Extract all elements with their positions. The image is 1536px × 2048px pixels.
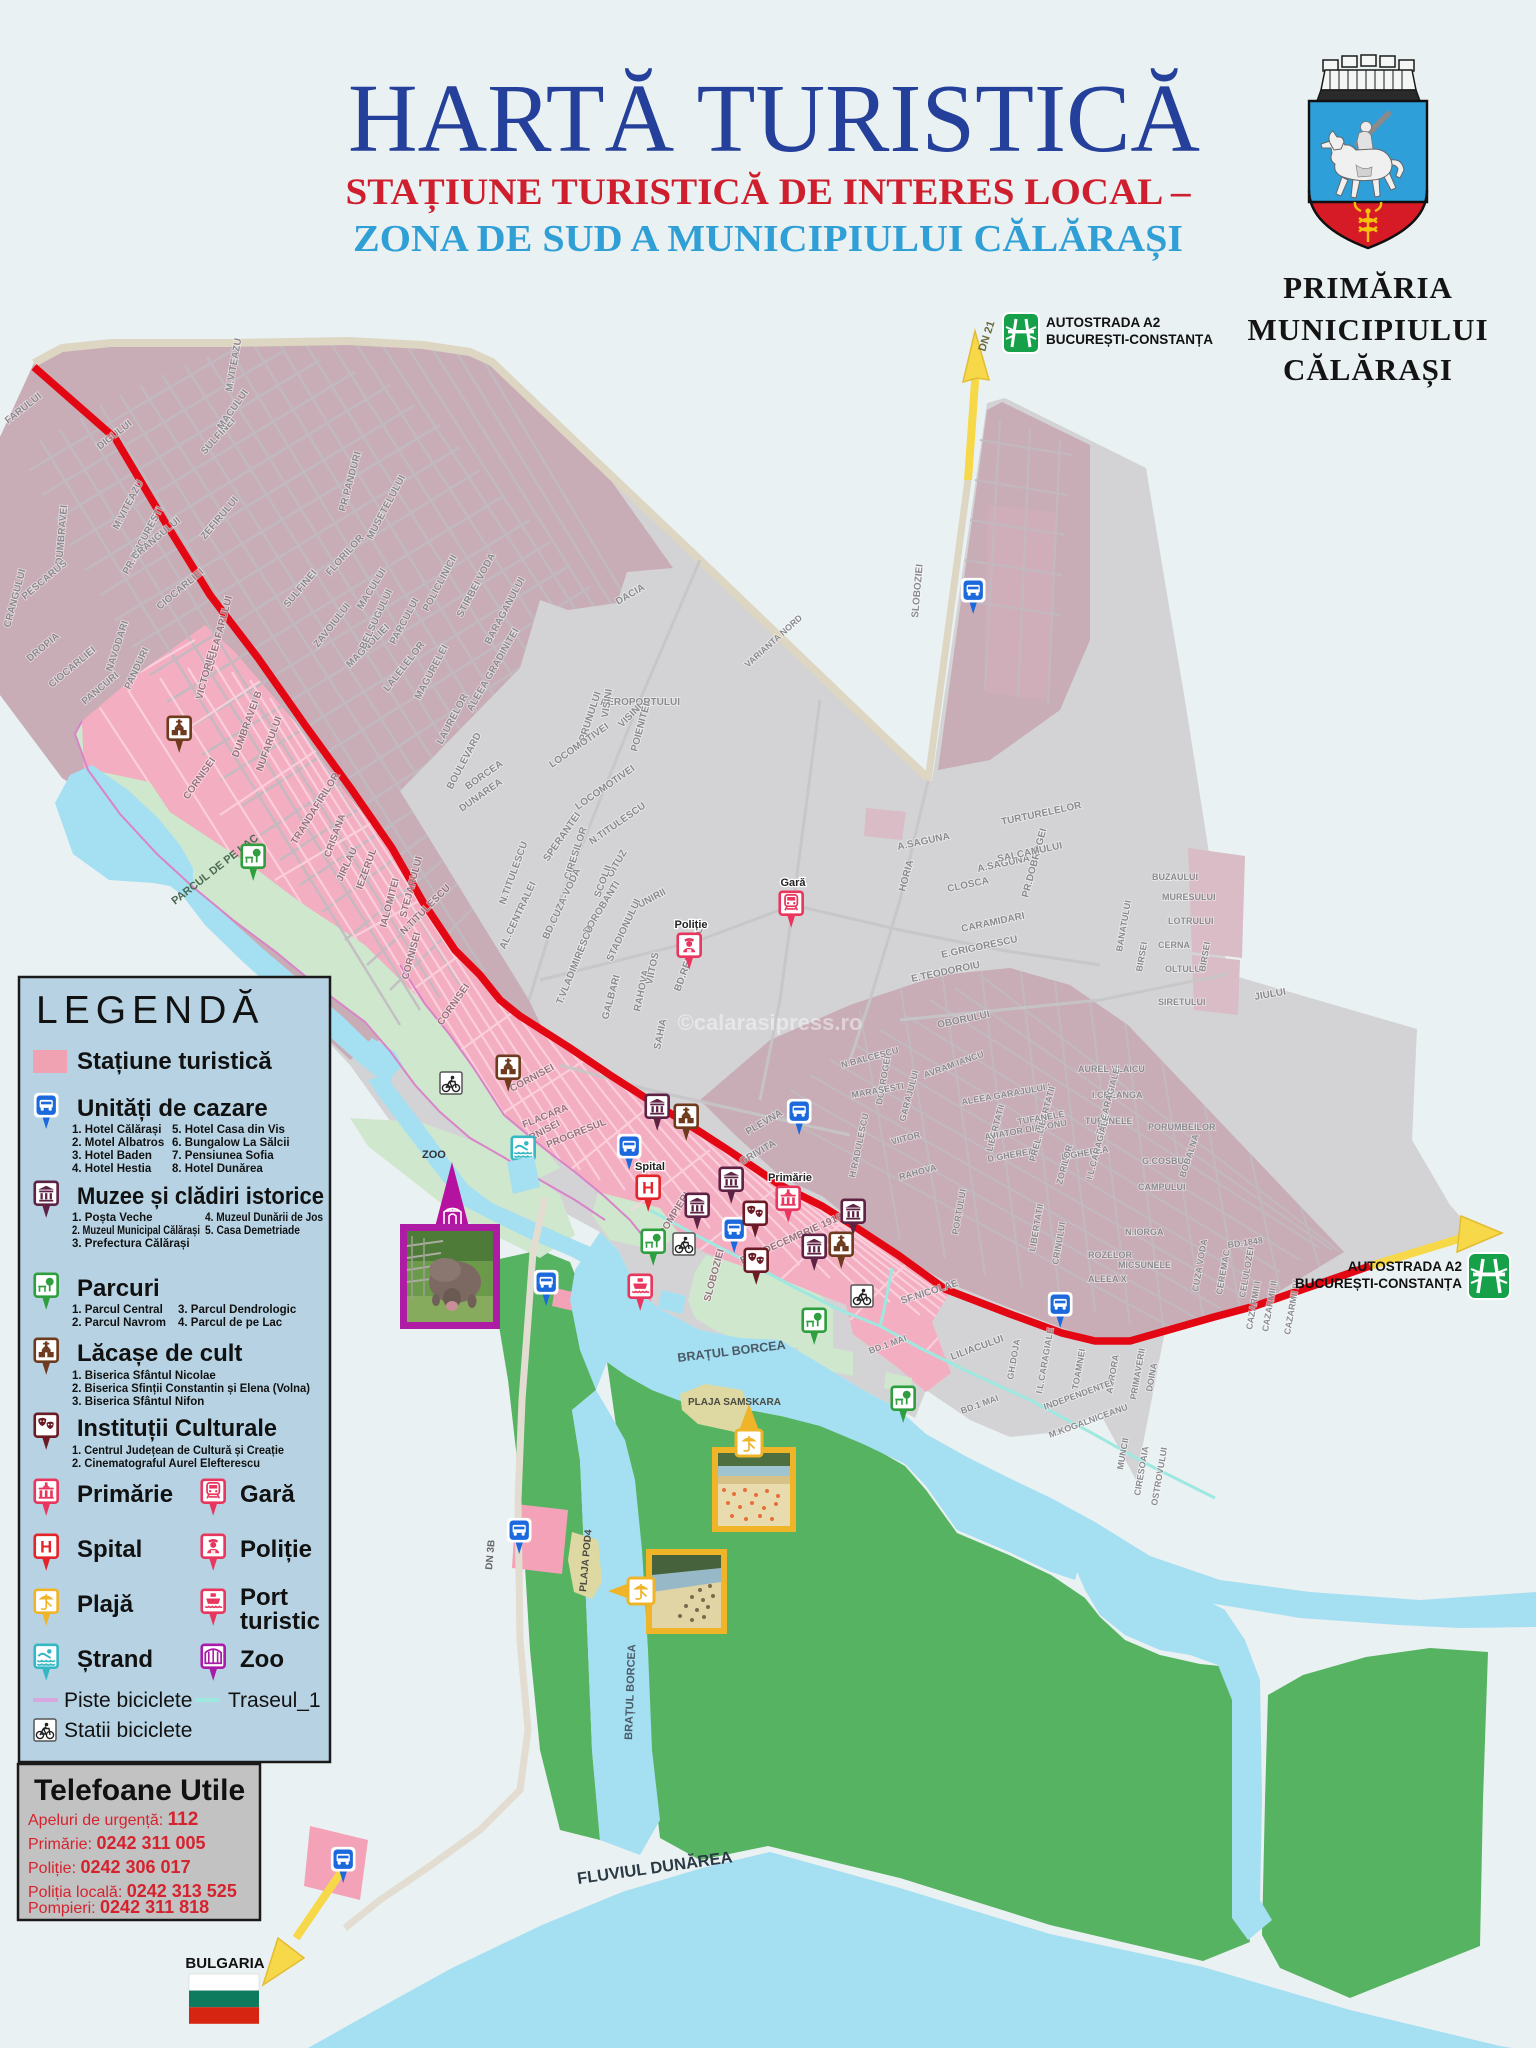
svg-text:Primărie: Primărie [77, 1481, 173, 1508]
svg-text:ZOO: ZOO [422, 1149, 446, 1161]
svg-text:Unități de cazare: Unități de cazare [77, 1095, 268, 1122]
svg-text:I.CREANGA: I.CREANGA [1092, 1090, 1143, 1100]
svg-text:AUTOSTRADA A2: AUTOSTRADA A2 [1348, 1259, 1462, 1274]
svg-text:4. Hotel Hestia: 4. Hotel Hestia [72, 1163, 152, 1175]
svg-text:5. Hotel Casa din Vis: 5. Hotel Casa din Vis [172, 1124, 285, 1136]
svg-text:MURESULUI: MURESULUI [1162, 892, 1216, 902]
svg-text:turistic: turistic [240, 1608, 320, 1635]
svg-text:3. Hotel Baden: 3. Hotel Baden [72, 1150, 152, 1162]
svg-text:3. Biserica Sfântul Nifon: 3. Biserica Sfântul Nifon [72, 1396, 204, 1408]
svg-text:1. Poșta Veche: 1. Poșta Veche [72, 1212, 153, 1224]
svg-text:Lăcașe de cult: Lăcașe de cult [77, 1340, 242, 1367]
svg-text:Traseul_1: Traseul_1 [228, 1689, 321, 1712]
svg-text:6. Bungalow La Sălcii: 6. Bungalow La Sălcii [172, 1137, 290, 1149]
svg-text:Piste biciclete: Piste biciclete [64, 1689, 192, 1712]
svg-text:1. Hotel Călărași: 1. Hotel Călărași [72, 1124, 161, 1136]
svg-text:Statii biciclete: Statii biciclete [64, 1719, 192, 1742]
svg-text:2. Muzeul Municipal Călărași: 2. Muzeul Municipal Călărași [72, 1225, 200, 1237]
svg-text:CĂLĂRAȘI: CĂLĂRAȘI [1283, 352, 1453, 388]
svg-text:SIRETULUI: SIRETULUI [1158, 997, 1206, 1007]
svg-text:LOTRULUI: LOTRULUI [1168, 916, 1214, 926]
svg-text:1. Parcul Central: 1. Parcul Central [72, 1304, 163, 1316]
svg-text:ROZELOR: ROZELOR [1088, 1250, 1132, 1260]
svg-text:3. Prefectura Călărași: 3. Prefectura Călărași [72, 1238, 190, 1250]
svg-text:OSTROVULUI: OSTROVULUI [1149, 1446, 1169, 1506]
svg-text:Gară: Gară [240, 1481, 295, 1508]
svg-text:Poliție: 0242 306 017: Poliție: 0242 306 017 [28, 1857, 191, 1877]
svg-text:Plajă: Plajă [77, 1591, 134, 1618]
svg-text:2. Biserica Sfinții Constantin: 2. Biserica Sfinții Constantin și Elena … [72, 1383, 310, 1395]
svg-text:STAȚIUNE TURISTICĂ DE INTERES: STAȚIUNE TURISTICĂ DE INTERES LOCAL – [346, 171, 1192, 214]
svg-text:8. Hotel Dunărea: 8. Hotel Dunărea [172, 1163, 263, 1175]
svg-text:Muzee și clădiri istorice: Muzee și clădiri istorice [77, 1183, 324, 1210]
svg-text:Spital: Spital [635, 1161, 665, 1173]
svg-text:Spital: Spital [77, 1536, 142, 1563]
svg-text:PLAJA SAMSKARA: PLAJA SAMSKARA [688, 1397, 781, 1408]
svg-text:CERNA: CERNA [1158, 940, 1191, 950]
svg-text:PRIMĂRIA: PRIMĂRIA [1283, 270, 1453, 305]
svg-text:BUCUREȘTI-CONSTANȚA: BUCUREȘTI-CONSTANȚA [1046, 332, 1213, 347]
svg-text:Primărie: Primărie [768, 1172, 812, 1184]
svg-text:Port: Port [240, 1584, 288, 1611]
svg-text:1. Biserica Sfântul Nicolae: 1. Biserica Sfântul Nicolae [72, 1370, 216, 1382]
svg-text:Apeluri de urgență: 112: Apeluri de urgență: 112 [28, 1809, 198, 1830]
svg-text:ZONA DE SUD A MUNICIPIULUI CĂL: ZONA DE SUD A MUNICIPIULUI CĂLĂRAȘI [353, 218, 1183, 261]
svg-text:2. Parcul Navrom: 2. Parcul Navrom [72, 1317, 166, 1329]
svg-text:CAMPULUI: CAMPULUI [1138, 1182, 1186, 1192]
svg-text:AUTOSTRADA A2: AUTOSTRADA A2 [1046, 315, 1160, 330]
svg-text:HARTĂ TURISTICĂ: HARTĂ TURISTICĂ [348, 65, 1200, 172]
svg-text:MICSUNELE: MICSUNELE [1118, 1260, 1171, 1270]
svg-text:3. Parcul Dendrologic: 3. Parcul Dendrologic [178, 1304, 297, 1316]
svg-text:Stațiune turistică: Stațiune turistică [77, 1048, 272, 1075]
svg-text:Poliție: Poliție [240, 1536, 312, 1563]
svg-text:N.IORGA: N.IORGA [1125, 1227, 1164, 1237]
svg-text:Poliție: Poliție [674, 919, 707, 931]
svg-text:Pompieri: 0242 311 818: Pompieri: 0242 311 818 [28, 1897, 209, 1917]
svg-text:SLOBOZIEI: SLOBOZIEI [910, 563, 926, 618]
svg-text:Gară: Gară [780, 877, 806, 889]
svg-text:BUCUREȘTI-CONSTANȚA: BUCUREȘTI-CONSTANȚA [1295, 1276, 1462, 1291]
svg-text:5. Casa Demetriade: 5. Casa Demetriade [205, 1225, 300, 1237]
svg-text:7. Pensiunea Sofia: 7. Pensiunea Sofia [172, 1150, 274, 1162]
svg-text:4. Muzeul Dunării de Jos: 4. Muzeul Dunării de Jos [205, 1212, 323, 1224]
svg-text:1. Centrul Județean de Cultură: 1. Centrul Județean de Cultură și Creați… [72, 1445, 284, 1457]
svg-text:PORUMBEILOR: PORUMBEILOR [1148, 1122, 1216, 1132]
svg-text:Instituții Culturale: Instituții Culturale [77, 1415, 277, 1442]
svg-text:MUNICIPIULUI: MUNICIPIULUI [1247, 312, 1488, 347]
svg-text:BULGARIA: BULGARIA [185, 1955, 264, 1972]
svg-text:Primărie: 0242 311 005: Primărie: 0242 311 005 [28, 1833, 206, 1853]
svg-text:Telefoane Utile: Telefoane Utile [34, 1774, 245, 1807]
svg-text:©calarasipress.ro: ©calarasipress.ro [678, 1010, 863, 1035]
svg-text:Zoo: Zoo [240, 1646, 284, 1673]
svg-text:DN 3B: DN 3B [484, 1539, 498, 1570]
svg-text:Ștrand: Ștrand [77, 1646, 153, 1673]
svg-text:ALEEA X: ALEEA X [1088, 1274, 1127, 1284]
svg-text:DN 21: DN 21 [976, 320, 997, 353]
svg-text:Parcuri: Parcuri [77, 1275, 160, 1302]
svg-text:BUZAULUI: BUZAULUI [1152, 872, 1198, 882]
svg-text:2. Motel Albatros: 2. Motel Albatros [72, 1137, 164, 1149]
svg-text:4. Parcul de pe Lac: 4. Parcul de pe Lac [178, 1317, 283, 1329]
svg-text:LEGENDĂ: LEGENDĂ [36, 989, 264, 1032]
svg-text:2. Cinematograful Aurel Elefte: 2. Cinematograful Aurel Elefterescu [72, 1458, 260, 1470]
